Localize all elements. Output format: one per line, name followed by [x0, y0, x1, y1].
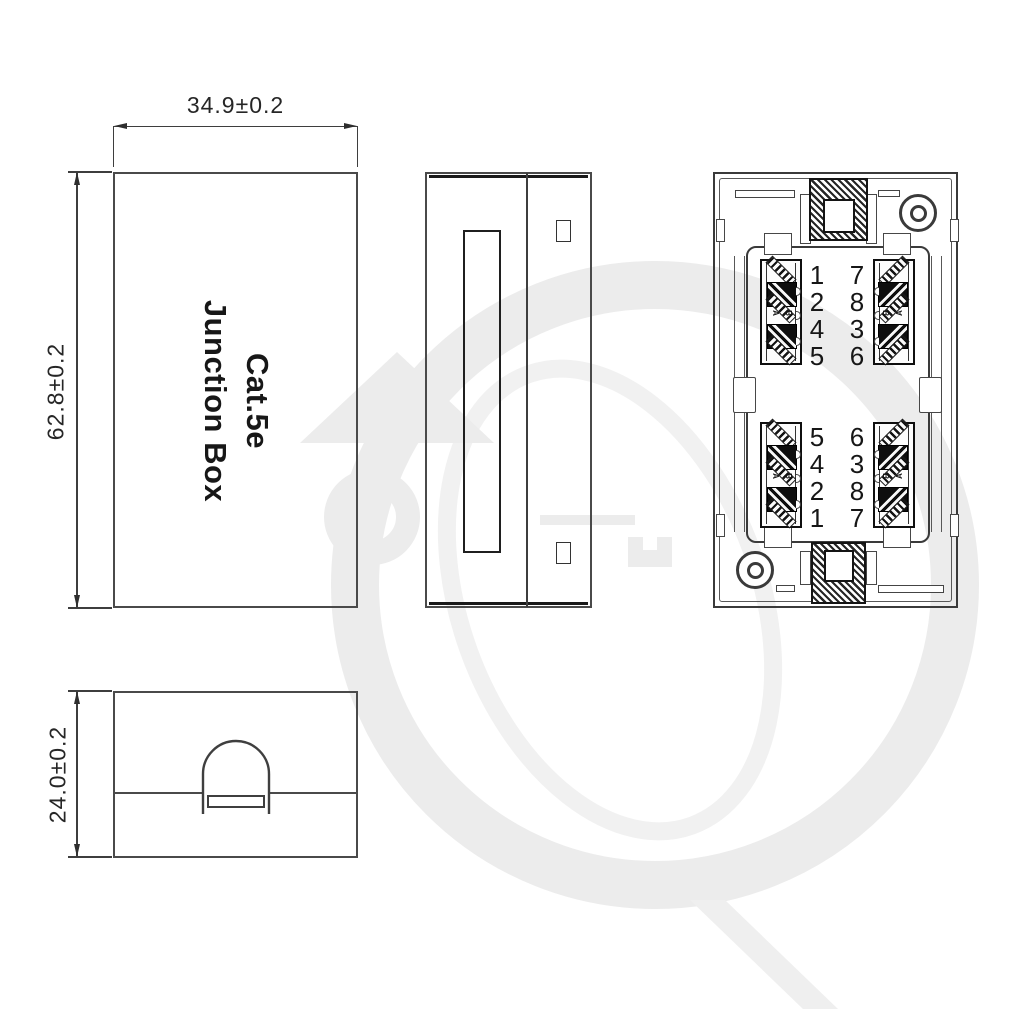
screw-hole-top-right	[910, 205, 927, 222]
screw-hole-bottom-left	[747, 562, 764, 579]
edge-tab-left-top	[716, 219, 725, 242]
edge-tab-right-bottom	[950, 514, 959, 537]
knockout-bracket-bottom-right	[866, 551, 877, 585]
contact-bump	[874, 287, 879, 296]
width-arrow-left-icon	[114, 123, 127, 129]
slot-top-left	[735, 190, 795, 198]
terminal-block-bottom-right: A B	[873, 422, 915, 528]
side-latch-bottom	[556, 542, 571, 564]
side-top-seam	[429, 175, 588, 178]
terminal-block-bottom-left: A B	[760, 422, 802, 528]
width-arrow-right-icon	[344, 123, 357, 129]
clip-bottom-left	[764, 526, 792, 548]
edge-tab-right-top	[950, 219, 959, 242]
slot-bottom-right	[878, 585, 944, 593]
wiring-scheme-labels: A B	[875, 468, 913, 484]
wiring-label-b: B	[779, 473, 795, 479]
contact-bump	[796, 474, 801, 483]
contact-bump	[796, 500, 801, 509]
port-number: 6	[845, 341, 869, 371]
terminal-block-top-left: A B	[760, 259, 802, 365]
dimension-height-label: 62.8±0.2	[43, 312, 70, 472]
port-number: 2	[805, 287, 829, 317]
port-number: 4	[805, 449, 829, 479]
wiring-scheme-labels: A B	[875, 305, 913, 321]
dimension-width-label: 34.9±0.2	[113, 92, 358, 119]
contact-bump	[874, 450, 879, 459]
wiring-label-b: B	[779, 310, 795, 316]
port-number: 8	[845, 476, 869, 506]
port-number: 6	[845, 422, 869, 452]
height-arrow-bottom-icon	[74, 595, 80, 608]
slot-bottom-left	[776, 585, 795, 592]
side-tab-left	[733, 377, 756, 413]
side-parting-line	[526, 173, 528, 607]
contact-bump	[874, 474, 879, 483]
contact-bump	[874, 337, 879, 346]
internal-view: A B A B	[713, 172, 958, 608]
port-number: 1	[805, 260, 829, 290]
cable-knockout-bottom-core	[824, 550, 854, 582]
side-bottom-seam	[429, 602, 588, 605]
clip-top-right	[883, 233, 911, 255]
contact-bump	[796, 450, 801, 459]
wiring-label-b: B	[880, 473, 896, 479]
height-arrow-top-icon	[74, 172, 80, 185]
contact-bump	[874, 500, 879, 509]
port-number: 8	[845, 287, 869, 317]
width-extension-line-left	[113, 126, 115, 167]
contact-bump	[874, 311, 879, 320]
wiring-label-b: B	[880, 310, 896, 316]
front-view-label: Cat.5e Junction Box	[192, 291, 278, 511]
port-number: 5	[805, 341, 829, 371]
port-number: 1	[805, 503, 829, 533]
port-number: 4	[805, 314, 829, 344]
height-dimension-line	[76, 173, 78, 607]
port-number: 3	[845, 314, 869, 344]
drawing-canvas: Cat.5e Junction Box 34.9±0.2 62.8±0.2 24…	[0, 0, 1024, 1009]
side-tab-right	[919, 377, 942, 413]
port-number: 3	[845, 449, 869, 479]
knockout-bracket-bottom-left	[800, 551, 811, 585]
side-latch-top	[556, 220, 571, 242]
depth-arrow-top-icon	[74, 691, 80, 704]
width-extension-line-right	[357, 126, 359, 167]
port-number: 5	[805, 422, 829, 452]
wiring-scheme-labels: A B	[762, 468, 800, 484]
width-dimension-line	[114, 126, 357, 128]
edge-tab-left-bottom	[716, 514, 725, 537]
cable-knockout-top-core	[823, 199, 855, 233]
front-label-line2: Junction Box	[194, 291, 236, 511]
port-number: 2	[805, 476, 829, 506]
port-number: 7	[845, 260, 869, 290]
cable-entry-insert	[207, 795, 265, 808]
clip-bottom-right	[883, 526, 911, 548]
dimension-depth-label: 24.0±0.2	[45, 695, 72, 855]
contact-bump	[796, 337, 801, 346]
clip-top-left	[764, 233, 792, 255]
front-label-line1: Cat.5e	[236, 291, 278, 511]
wiring-scheme-labels: A B	[762, 305, 800, 321]
contact-bump	[796, 287, 801, 296]
depth-arrow-bottom-icon	[74, 844, 80, 857]
side-slot	[463, 230, 501, 553]
depth-dimension-line	[76, 692, 78, 856]
port-number: 7	[845, 503, 869, 533]
contact-bump	[796, 311, 801, 320]
slot-top-right	[878, 190, 900, 197]
terminal-block-top-right: A B	[873, 259, 915, 365]
